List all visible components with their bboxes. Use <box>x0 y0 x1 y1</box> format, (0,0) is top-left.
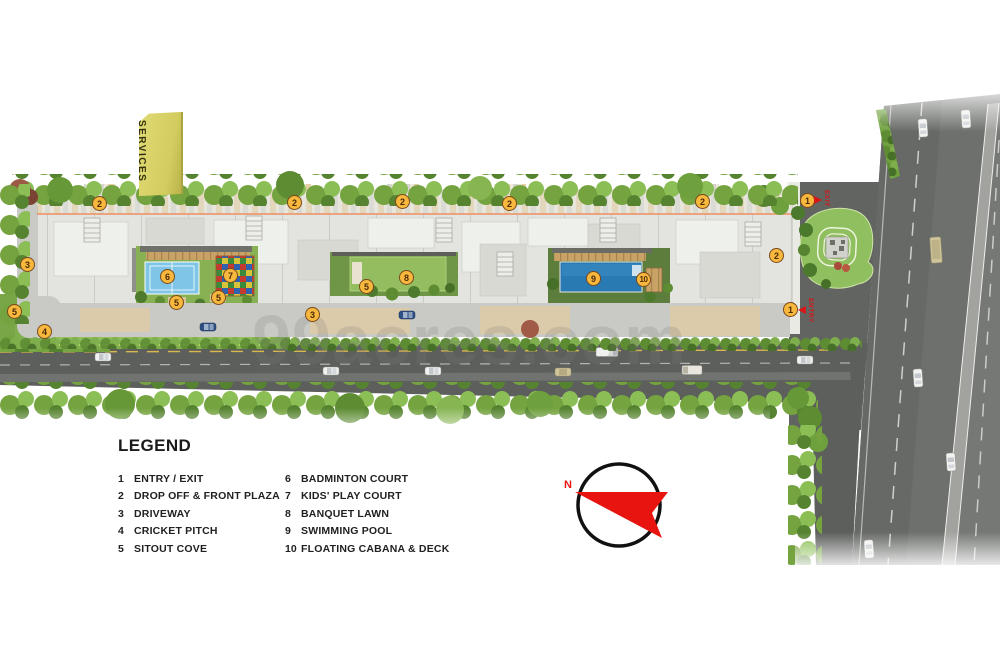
legend-item-label: FLOATING CABANA & DECK <box>301 543 449 555</box>
legend-item-label: KIDS' PLAY COURT <box>301 490 402 502</box>
plan-marker-7: 7 <box>223 268 238 283</box>
legend-title: LEGEND <box>118 436 508 456</box>
legend-item-number: 4 <box>118 525 134 537</box>
exit-arrow-icon <box>814 196 822 204</box>
compass-icon <box>570 458 682 562</box>
services-flag-label: SERVICES <box>136 120 147 183</box>
plan-marker-2: 2 <box>502 196 517 211</box>
legend-item-label: BADMINTON COURT <box>301 473 408 485</box>
services-flag: SERVICES <box>139 112 183 196</box>
legend: LEGEND 1ENTRY / EXIT2DROP OFF & FRONT PL… <box>118 436 508 558</box>
legend-item-number: 5 <box>118 543 134 555</box>
legend-item-number: 7 <box>285 490 301 502</box>
plan-marker-3: 3 <box>305 307 320 322</box>
plan-marker-9: 9 <box>586 271 601 286</box>
plan-marker-4: 4 <box>37 324 52 339</box>
legend-item-label: SITOUT COVE <box>134 543 207 555</box>
entry-label: ENTRY <box>807 298 814 323</box>
legend-item-number: 10 <box>285 543 301 555</box>
plan-marker-2: 2 <box>287 195 302 210</box>
legend-column-1: 1ENTRY / EXIT2DROP OFF & FRONT PLAZA3DRI… <box>118 470 285 558</box>
plan-marker-2: 2 <box>695 194 710 209</box>
legend-item-label: BANQUET LAWN <box>301 508 389 520</box>
exit-label: EXIT <box>823 190 830 207</box>
legend-item-label: CRICKET PITCH <box>134 525 218 537</box>
plan-marker-6: 6 <box>160 269 175 284</box>
legend-item-5: 5SITOUT COVE <box>118 540 285 558</box>
plan-marker-1: 1 <box>783 302 798 317</box>
legend-column-2: 6BADMINTON COURT7KIDS' PLAY COURT8BANQUE… <box>285 470 449 558</box>
legend-item-6: 6BADMINTON COURT <box>285 470 449 488</box>
plan-marker-2: 2 <box>769 248 784 263</box>
legend-item-number: 2 <box>118 490 134 502</box>
legend-item-number: 9 <box>285 525 301 537</box>
legend-item-10: 10FLOATING CABANA & DECK <box>285 540 449 558</box>
plan-marker-5: 5 <box>359 279 374 294</box>
legend-item-3: 3DRIVEWAY <box>118 505 285 523</box>
highway-top-fade <box>845 80 1000 132</box>
plan-marker-5: 5 <box>7 304 22 319</box>
plan-marker-3: 3 <box>20 257 35 272</box>
legend-item-2: 2DROP OFF & FRONT PLAZA <box>118 488 285 506</box>
legend-item-number: 6 <box>285 473 301 485</box>
plan-marker-5: 5 <box>211 290 226 305</box>
legend-item-4: 4CRICKET PITCH <box>118 523 285 541</box>
legend-item-number: 8 <box>285 508 301 520</box>
plan-marker-10: 10 <box>636 272 651 287</box>
legend-item-9: 9SWIMMING POOL <box>285 523 449 541</box>
legend-item-label: SWIMMING POOL <box>301 525 392 537</box>
plan-marker-2: 2 <box>92 196 107 211</box>
bus <box>930 237 943 264</box>
legend-item-1: 1ENTRY / EXIT <box>118 470 285 488</box>
site-plan-page: 99acres.com SERVICES 2222221133455556789… <box>0 0 1000 667</box>
plan-marker-8: 8 <box>399 270 414 285</box>
legend-item-8: 8BANQUET LAWN <box>285 505 449 523</box>
legend-item-label: ENTRY / EXIT <box>134 473 204 485</box>
legend-item-label: DRIVEWAY <box>134 508 191 520</box>
compass: N <box>570 458 682 562</box>
highway <box>852 94 1000 565</box>
plan-marker-5: 5 <box>169 295 184 310</box>
highway-bottom-fade <box>795 532 1000 572</box>
legend-item-7: 7KIDS' PLAY COURT <box>285 488 449 506</box>
entry-arrow-icon <box>798 306 806 314</box>
legend-item-number: 3 <box>118 508 134 520</box>
trees-bottom-fade <box>0 408 770 438</box>
legend-item-label: DROP OFF & FRONT PLAZA <box>134 490 280 502</box>
compass-north-label: N <box>564 479 572 491</box>
plan-marker-2: 2 <box>395 194 410 209</box>
legend-item-number: 1 <box>118 473 134 485</box>
plan-marker-1: 1 <box>800 193 815 208</box>
